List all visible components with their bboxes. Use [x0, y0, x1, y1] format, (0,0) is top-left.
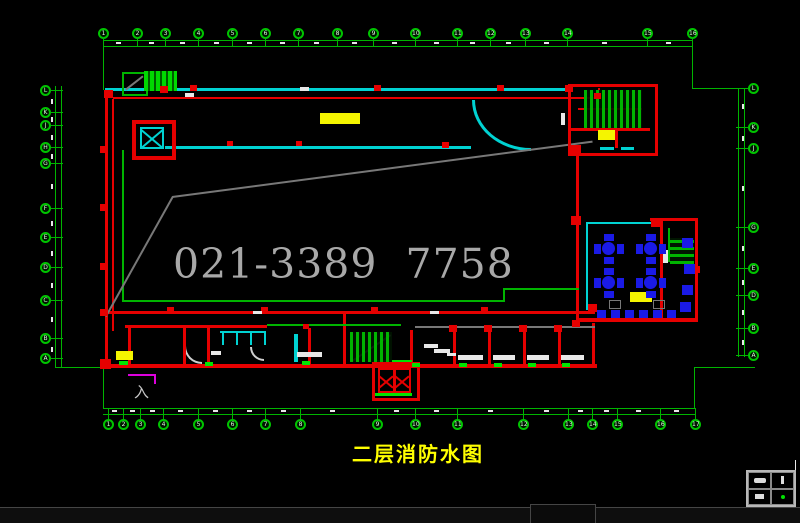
grid-axis-bubble: 13 [563, 419, 574, 430]
dim-left-1 [55, 86, 56, 367]
grid-axis-bubble: 5 [193, 419, 204, 430]
dimension-text-mark [213, 410, 218, 412]
grid-axis-bubble: 15 [612, 419, 623, 430]
dim-right-1 [738, 88, 739, 357]
annotation-mark [527, 355, 549, 360]
pipe-green-low [267, 324, 401, 326]
room-div-2 [183, 328, 186, 366]
dimension-text-mark [51, 251, 53, 256]
yellow-highlight [116, 351, 133, 360]
dimension-text-mark [742, 186, 744, 191]
floor-plan-drawing: 021-3389 7758 二层消防水图 入 12345678910111213… [0, 0, 800, 523]
grid-tick [415, 408, 416, 419]
grid-axis-bubble: L [748, 83, 759, 94]
hydrant-symbol [554, 325, 562, 332]
dining-chair [617, 278, 624, 288]
curved-wall [472, 100, 531, 151]
dining-chair [604, 257, 614, 264]
chair-symbol [653, 310, 662, 318]
green-marker [412, 363, 420, 367]
dimension-text-mark [434, 42, 439, 44]
entrance-symbol: 入 [134, 381, 149, 402]
dash-icon [755, 494, 764, 499]
annotation-mark [185, 93, 194, 97]
grid-tick [736, 227, 749, 228]
bottom-status-bar [0, 507, 800, 523]
magenta-line-v [154, 374, 156, 384]
chair-symbol [684, 264, 695, 274]
dining-table [602, 276, 615, 289]
grid-axis-bubble: 6 [227, 419, 238, 430]
grid-tick [736, 295, 749, 296]
dining-chair [594, 278, 601, 288]
wall-left-inner [112, 99, 114, 331]
grid-tick [298, 37, 299, 47]
dimension-text-mark [51, 317, 53, 322]
green-marker [205, 362, 213, 366]
pipe-green-riser-h [503, 288, 579, 290]
grid-tick [377, 408, 378, 419]
shaft-b-x2 [394, 368, 411, 393]
dimension-text-mark [180, 42, 185, 44]
dimension-text-mark [666, 42, 671, 44]
dim-top-2 [103, 46, 693, 47]
annotation-mark [253, 311, 262, 314]
dining-wall-left [586, 222, 588, 310]
grid-axis-bubble: 17 [690, 419, 701, 430]
dim-conn-bl-h [55, 367, 104, 368]
grid-tick [198, 408, 199, 419]
legend-cell [748, 489, 771, 506]
grid-tick [140, 408, 141, 419]
dimension-text-mark [51, 117, 53, 122]
pipe-main [105, 311, 595, 314]
hydrant-symbol [449, 325, 457, 332]
dimension-text-mark [51, 283, 53, 288]
hydrant-symbol [481, 307, 488, 313]
hydrant-symbol [303, 324, 309, 329]
grid-tick [695, 408, 696, 419]
grid-tick [50, 358, 63, 359]
dining-chair [646, 234, 656, 241]
dim-conn-tr-v [692, 46, 693, 89]
grid-tick [165, 37, 166, 47]
hydrant-symbol [442, 142, 449, 148]
dim-conn-tl [103, 46, 104, 90]
hydrant-symbol [572, 320, 580, 327]
hydrant-symbol [100, 204, 108, 211]
grid-tick [163, 408, 164, 419]
grid-tick [50, 147, 63, 148]
drawing-title: 二层消防水图 [352, 438, 484, 467]
grid-axis-bubble: 1 [103, 419, 114, 430]
grid-axis-bubble: 4 [158, 419, 169, 430]
dimension-text-mark [51, 184, 53, 189]
grid-axis-bubble: K [748, 122, 759, 133]
hydrant-symbol [651, 219, 660, 227]
shaft-b-x1 [378, 368, 395, 393]
yellow-highlight [598, 130, 615, 140]
hydrant-symbol [497, 85, 504, 91]
dimension-text-mark [51, 135, 53, 140]
hydrant-symbol [261, 307, 268, 313]
grid-axis-bubble: 11 [452, 419, 463, 430]
dining-wall-bottom [576, 318, 698, 322]
dining-wall-top [588, 222, 656, 224]
grid-axis-bubble: 2 [118, 419, 129, 430]
grid-tick [300, 408, 301, 419]
dimension-text-mark [434, 410, 439, 412]
grid-tick [137, 37, 138, 47]
dimension-text-mark [742, 280, 744, 285]
grid-tick [50, 338, 63, 339]
dimension-text-mark [281, 410, 286, 412]
dimension-text-mark [352, 42, 357, 44]
dimension-text-mark [51, 221, 53, 226]
dimension-text-mark [578, 410, 583, 412]
green-marker [302, 361, 310, 365]
dim-left-2 [61, 86, 62, 367]
green-marker [119, 361, 128, 365]
annotation-mark [300, 87, 309, 91]
grid-axis-bubble: 10 [410, 419, 421, 430]
hydrant-symbol [190, 85, 197, 91]
dimension-text-mark [544, 410, 549, 412]
pipe-top [113, 97, 600, 99]
dining-chair [604, 234, 614, 241]
grid-tick [265, 408, 266, 419]
chair-symbol [611, 310, 620, 318]
annotation-mark [211, 351, 221, 355]
grid-axis-bubble: J [748, 143, 759, 154]
stair2-treads [350, 332, 392, 362]
hydrant-symbol [296, 141, 302, 146]
dimension-text-mark [214, 42, 219, 44]
grid-tick [736, 328, 749, 329]
room-div-7 [453, 330, 456, 366]
hydrant-symbol [374, 85, 381, 91]
hydrant-symbol [100, 309, 108, 316]
grid-tick [198, 37, 199, 47]
hydrant-symbol [484, 325, 492, 332]
room-div-1 [128, 328, 131, 366]
hydrant-symbol [167, 307, 174, 313]
chair-symbol [682, 285, 693, 295]
annotation-mark [458, 355, 483, 360]
door-arc [250, 347, 264, 361]
grid-tick [50, 163, 63, 164]
dimension-text-mark [674, 410, 679, 412]
grid-tick [592, 408, 593, 419]
watermark-edge-left [105, 196, 173, 316]
grid-tick [265, 37, 266, 47]
toilet-stall-2 [236, 331, 238, 345]
dimension-text-mark [116, 42, 121, 44]
dimension-text-mark [742, 310, 744, 315]
hydrant-symbol [160, 86, 168, 93]
toilet-stall-1 [222, 331, 224, 345]
grid-tick [736, 127, 749, 128]
wall-lowerwing-top [125, 325, 267, 328]
dining-chair [659, 278, 666, 288]
watermark-phone: 021-3389 7758 [173, 240, 514, 288]
dining-chair [646, 268, 656, 275]
grid-tick [103, 37, 104, 47]
grid-tick [50, 125, 63, 126]
annotation-mark [430, 311, 439, 314]
grid-tick [50, 237, 63, 238]
grid-tick [50, 267, 63, 268]
chair-symbol [682, 238, 693, 248]
dimension-text-mark [544, 42, 549, 44]
door-arc [184, 346, 202, 364]
dimension-text-mark [330, 410, 335, 412]
wall-left-outer [105, 97, 108, 367]
dim-right-2 [744, 88, 745, 357]
grid-axis-bubble: E [748, 263, 759, 274]
toilet-stall-3 [250, 331, 252, 345]
grid-axis-bubble: B [748, 323, 759, 334]
dimension-text-mark [51, 347, 53, 352]
grid-axis-bubble: D [748, 290, 759, 301]
sofa-icon [754, 478, 766, 483]
grid-tick [647, 37, 648, 47]
dimension-text-mark [636, 410, 641, 412]
hydrant-symbol [371, 307, 378, 313]
wall-corridor [165, 146, 471, 149]
legend-panel [746, 470, 796, 507]
hydrant-symbol [100, 263, 108, 270]
grid-tick [373, 37, 374, 47]
grid-tick [232, 408, 233, 419]
shaft-a-xbox [140, 127, 164, 149]
dimension-text-mark [149, 42, 154, 44]
dim-conn-br-h [694, 367, 755, 368]
grid-axis-bubble: 9 [372, 419, 383, 430]
dimension-text-mark [394, 410, 399, 412]
hydrant-symbol [104, 90, 113, 98]
cad-viewport[interactable]: 021-3389 7758 二层消防水图 入 12345678910111213… [0, 0, 800, 523]
room-div-11 [592, 323, 595, 366]
legend-cell [748, 472, 771, 489]
dimension-text-mark [247, 410, 252, 412]
green-dot-icon [781, 495, 785, 499]
inner-wall-v [122, 150, 124, 302]
grid-tick [567, 37, 568, 47]
dimension-text-mark [112, 410, 117, 412]
green-marker [562, 363, 570, 367]
grid-tick [525, 37, 526, 47]
grid-tick [123, 408, 124, 419]
toilet-stall-4 [264, 331, 266, 345]
green-marker [494, 363, 502, 367]
green-marker [528, 363, 536, 367]
hall-gray-line [415, 326, 595, 328]
toilet-riser [294, 334, 298, 362]
hydrant-symbol [588, 304, 597, 312]
grid-tick [108, 408, 109, 419]
dimension-text-mark [314, 42, 319, 44]
green-marker [459, 363, 467, 367]
dimension-text-mark [488, 410, 493, 412]
grid-axis-bubble: G [748, 222, 759, 233]
dim-conn-br-v [694, 368, 695, 408]
bottom-bar-segment[interactable] [530, 504, 596, 523]
hydrant-symbol [100, 359, 111, 369]
magenta-line-h [128, 374, 156, 376]
grid-tick [50, 208, 63, 209]
yellow-highlight [320, 113, 360, 124]
dimension-text-mark [506, 42, 511, 44]
annotation-mark [493, 355, 515, 360]
grid-tick [457, 37, 458, 47]
hydrant-symbol [519, 325, 527, 332]
grid-tick [736, 355, 749, 356]
stair-treads [584, 90, 642, 128]
dining-chair [646, 291, 656, 298]
grid-tick [617, 408, 618, 419]
dining-table [644, 242, 657, 255]
grid-tick [232, 37, 233, 47]
room-div-8 [488, 330, 491, 366]
person-icon [781, 476, 784, 484]
grid-axis-bubble: 8 [295, 419, 306, 430]
dim-conn-tr-h [692, 88, 740, 89]
hydrant-symbol [565, 85, 573, 92]
dim-conn-bl-v [103, 367, 104, 408]
grid-axis-bubble: 7 [260, 419, 271, 430]
chair-outline-1 [609, 300, 621, 309]
room-div-3 [207, 328, 210, 366]
annotation-mark [447, 353, 456, 356]
legend-cell [771, 489, 794, 506]
dining-chair [617, 244, 624, 254]
dining-chair [604, 268, 614, 275]
annotation-mark [561, 113, 565, 125]
dining-table [602, 242, 615, 255]
hydrant-symbol [100, 146, 108, 153]
dim-bottom-2 [103, 414, 695, 415]
chair-symbol [597, 310, 606, 318]
grid-tick [457, 408, 458, 419]
grid-tick [736, 88, 749, 89]
grid-tick [50, 90, 63, 91]
dining-chair [594, 244, 601, 254]
dimension-text-mark [51, 99, 53, 104]
annotation-mark [561, 355, 584, 360]
dim-bottom-1 [103, 408, 695, 409]
room-div-5 [343, 313, 346, 366]
dimension-text-mark [130, 410, 135, 412]
dimension-text-mark [742, 104, 744, 109]
grid-axis-bubble: A [748, 350, 759, 361]
dining-chair [646, 257, 656, 264]
dining-chair [636, 278, 643, 288]
watermark-edge-upper [172, 141, 593, 198]
chair-symbol [639, 310, 648, 318]
grid-tick [736, 148, 749, 149]
chair-symbol [667, 310, 676, 318]
dimension-text-mark [51, 154, 53, 159]
dimension-text-mark [602, 42, 607, 44]
inner-wall-h [122, 300, 505, 302]
grid-tick [337, 37, 338, 47]
dimension-text-mark [604, 410, 609, 412]
chair-outline-2 [653, 300, 665, 309]
grid-axis-bubble: 12 [518, 419, 529, 430]
pipe-green-riser-v [503, 289, 505, 301]
dimension-text-mark [470, 42, 475, 44]
hydrant-symbol [571, 216, 581, 225]
grid-tick [736, 268, 749, 269]
dimension-text-mark [742, 136, 744, 141]
dimension-text-mark [178, 410, 183, 412]
room-div-10 [558, 330, 561, 366]
hydrant-symbol [227, 141, 233, 146]
dimension-text-mark [150, 410, 155, 412]
dimension-text-mark [392, 42, 397, 44]
grid-tick [415, 37, 416, 47]
grid-axis-bubble: 3 [135, 419, 146, 430]
grid-tick [523, 408, 524, 419]
toilet-wall-top [220, 331, 266, 333]
grid-tick [692, 37, 693, 47]
chair-symbol [625, 310, 634, 318]
legend-cell [771, 472, 794, 489]
dining-chair [636, 244, 643, 254]
room-div-9 [523, 330, 526, 366]
dimension-text-mark [742, 246, 744, 251]
grid-tick [50, 112, 63, 113]
dining-chair [659, 244, 666, 254]
grid-axis-bubble: 16 [655, 419, 666, 430]
grid-tick [490, 37, 491, 47]
dining-table [644, 276, 657, 289]
hydrant-symbol [571, 145, 581, 154]
grid-tick [568, 408, 569, 419]
chair-symbol [680, 302, 691, 312]
annotation-mark [297, 352, 322, 357]
hydrant-symbol [594, 93, 601, 99]
pipe-riser-vert [576, 148, 579, 323]
dim-top-1 [103, 40, 693, 41]
grid-tick [50, 300, 63, 301]
annotation-mark [424, 344, 438, 348]
grid-axis-bubble: 14 [587, 419, 598, 430]
dimension-text-mark [247, 42, 252, 44]
dimension-text-mark [280, 42, 285, 44]
dimension-text-mark [742, 340, 744, 345]
dining-chair [604, 291, 614, 298]
grid-tick [660, 408, 661, 419]
